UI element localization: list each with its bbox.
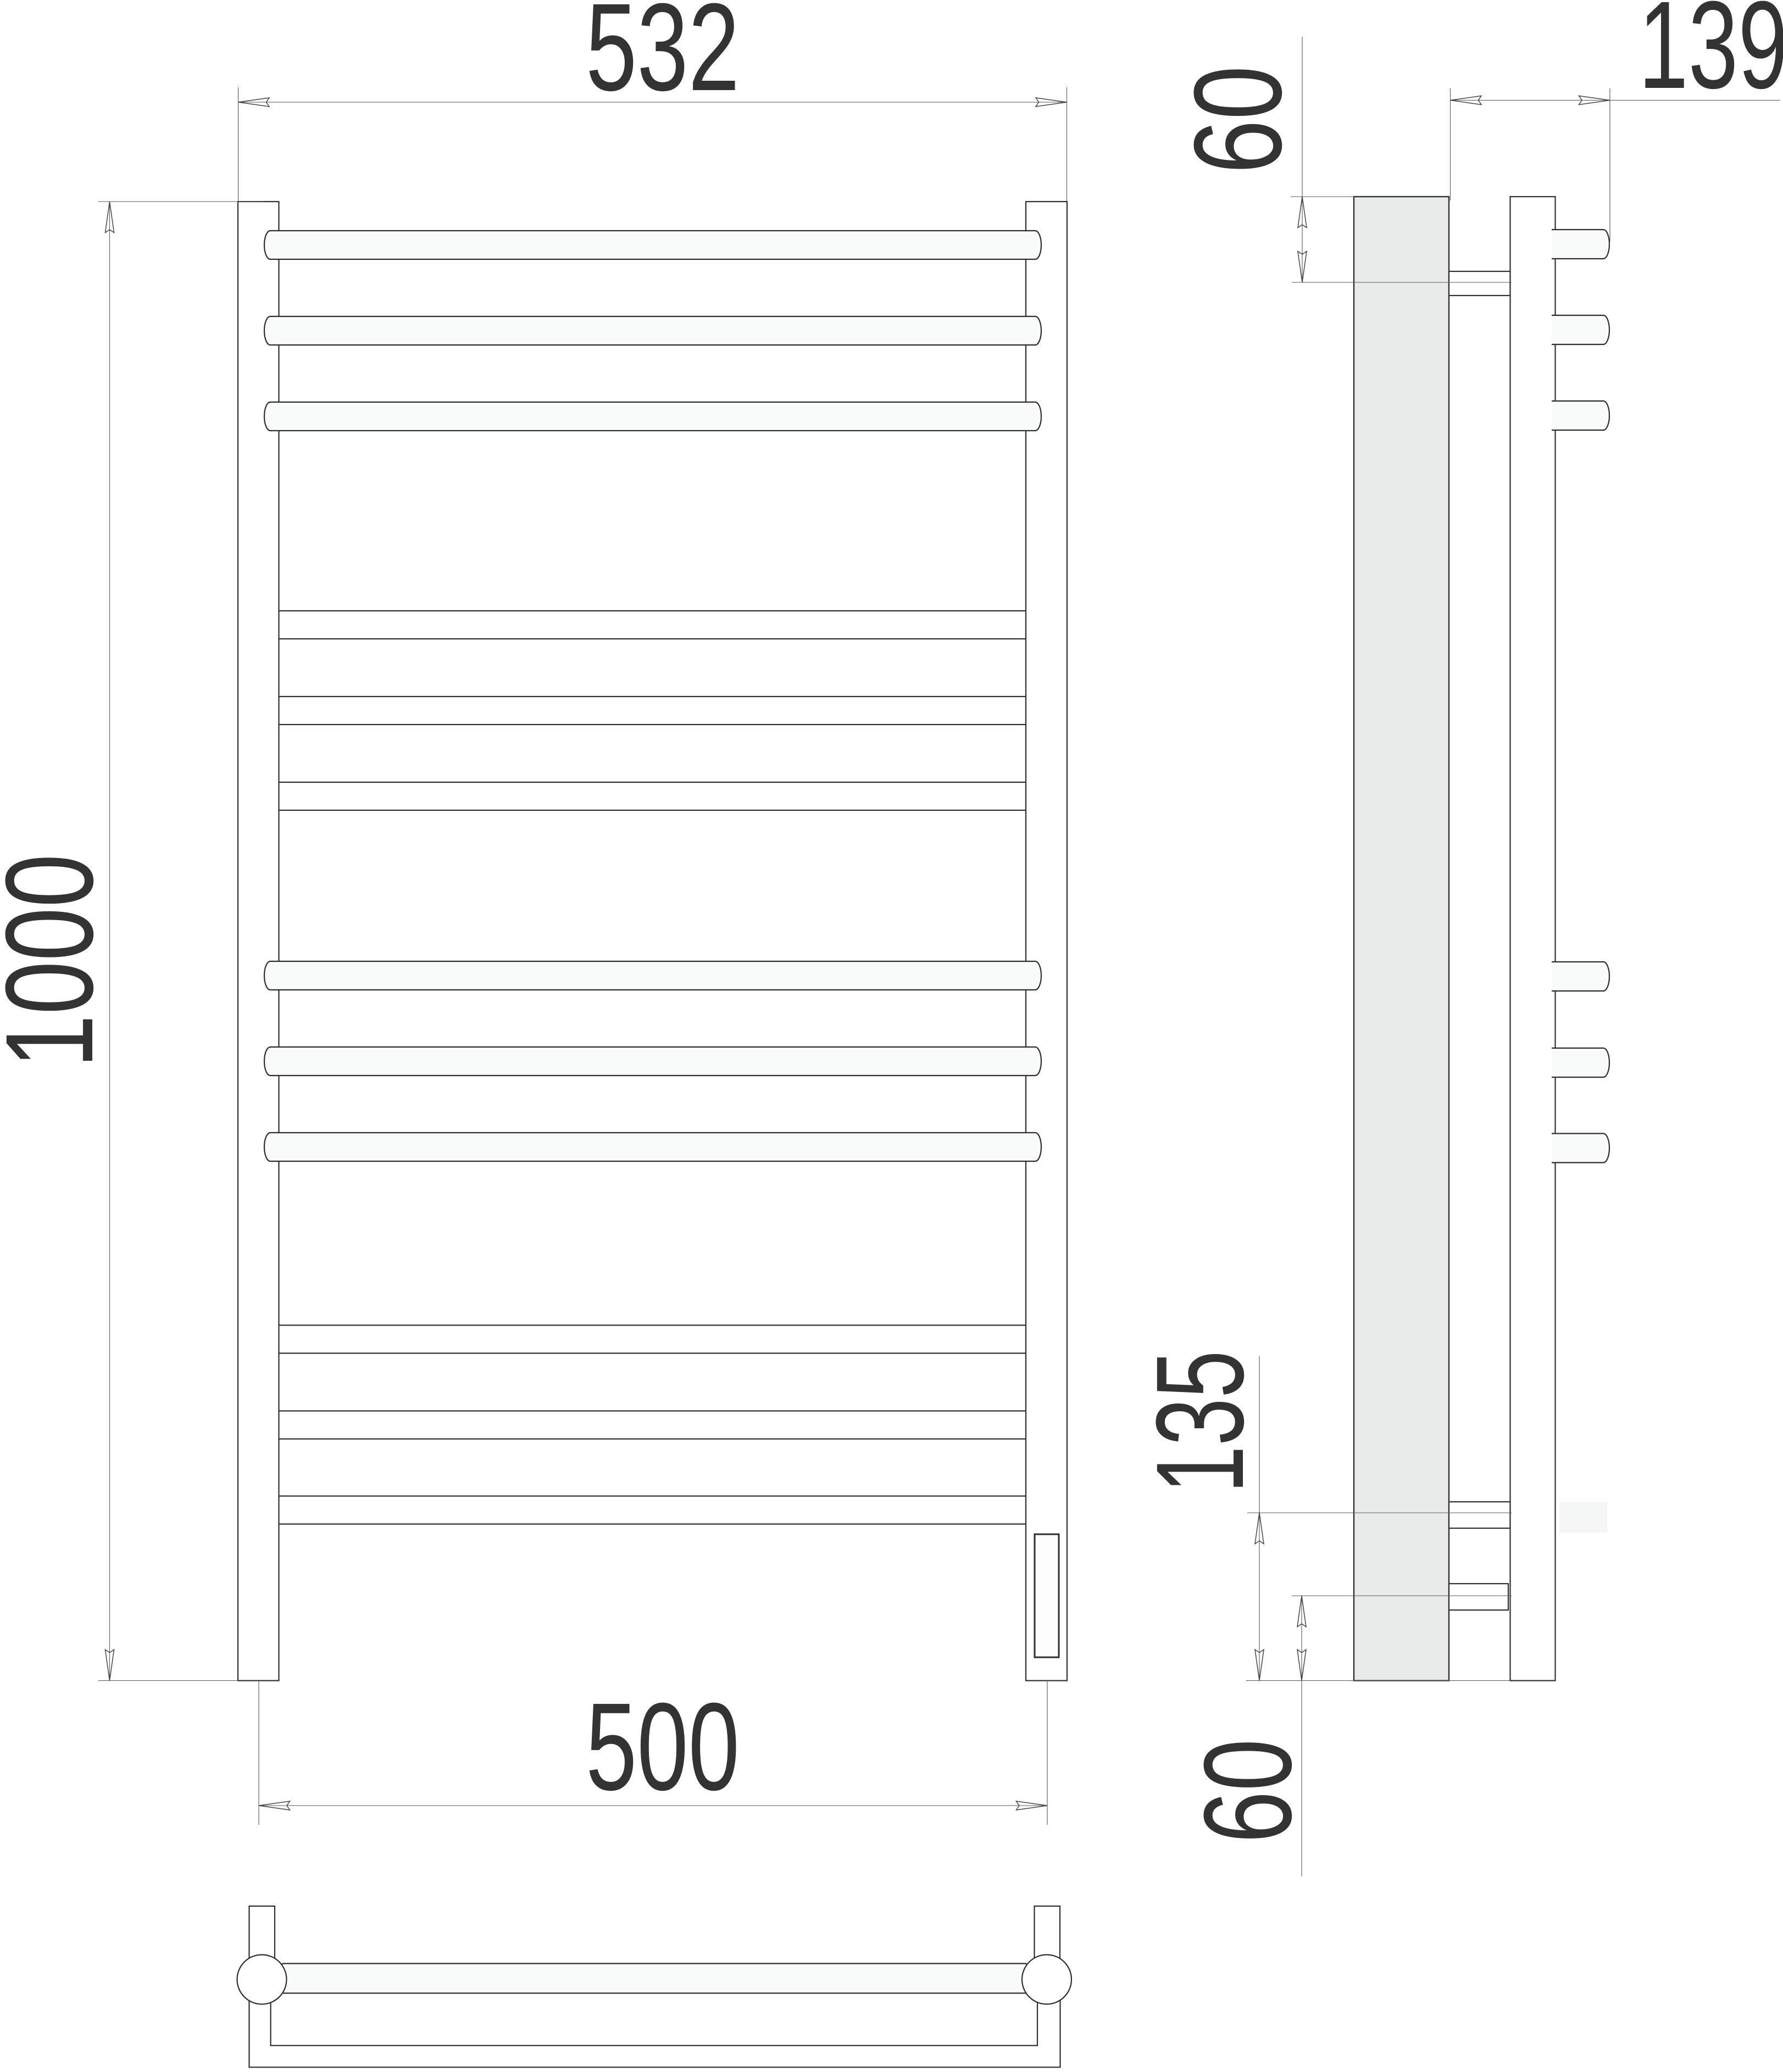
svg-text:139: 139 — [1638, 0, 1783, 115]
svg-text:60: 60 — [1169, 66, 1308, 174]
svg-text:135: 135 — [1131, 1351, 1270, 1494]
svg-text:1000: 1000 — [0, 854, 119, 1068]
svg-text:500: 500 — [586, 1678, 740, 1817]
svg-text:532: 532 — [586, 0, 740, 117]
svg-text:60: 60 — [1179, 1739, 1318, 1843]
